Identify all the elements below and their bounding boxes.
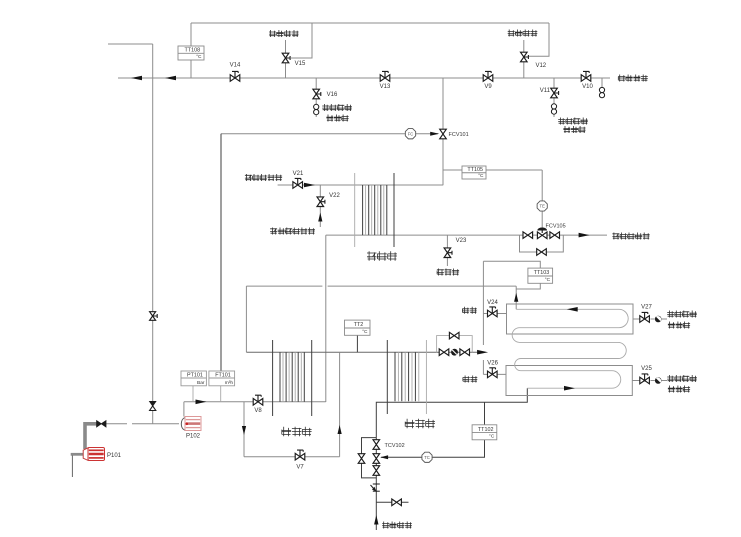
svg-text:V21: V21: [293, 171, 304, 177]
svg-text:°C: °C: [545, 277, 551, 283]
svg-text:°C: °C: [196, 54, 202, 60]
svg-text:FC: FC: [408, 131, 414, 136]
svg-text:°C: °C: [478, 173, 484, 179]
svg-text:V23: V23: [456, 238, 467, 244]
svg-text:TT108: TT108: [185, 48, 201, 54]
svg-text:°C: °C: [362, 329, 368, 335]
svg-text:V25: V25: [641, 366, 652, 372]
svg-text:TT103: TT103: [534, 270, 550, 276]
svg-text:V8: V8: [254, 408, 262, 414]
svg-text:V12: V12: [535, 63, 546, 69]
svg-text:V10: V10: [582, 84, 593, 90]
svg-text:V27: V27: [641, 305, 652, 311]
svg-text:V14: V14: [230, 63, 241, 69]
svg-text:FT101: FT101: [215, 373, 231, 379]
svg-text:TT105: TT105: [467, 167, 483, 173]
svg-text:V7: V7: [296, 465, 304, 471]
svg-text:TT102: TT102: [478, 427, 494, 433]
svg-text:V26: V26: [487, 361, 498, 367]
svg-text:P101: P101: [107, 453, 122, 459]
svg-text:V15: V15: [295, 61, 306, 67]
svg-text:V22: V22: [329, 193, 340, 199]
svg-text:FCV105: FCV105: [546, 224, 566, 230]
svg-text:Bar: Bar: [197, 380, 205, 386]
svg-text:PT101: PT101: [187, 373, 203, 379]
svg-text:V9: V9: [484, 84, 492, 90]
svg-text:P102: P102: [186, 434, 201, 440]
svg-text:V13: V13: [380, 84, 391, 90]
svg-text:°C: °C: [489, 434, 495, 440]
svg-text:V11: V11: [540, 88, 551, 94]
svg-text:TE: TE: [540, 204, 546, 209]
svg-text:TT2: TT2: [354, 322, 364, 328]
svg-text:TCV102: TCV102: [385, 443, 405, 449]
svg-text:V16: V16: [327, 92, 338, 98]
svg-text:TC: TC: [424, 455, 430, 460]
svg-text:m³h: m³h: [225, 380, 234, 386]
svg-text:FCV101: FCV101: [449, 132, 469, 138]
svg-text:V24: V24: [487, 300, 498, 306]
